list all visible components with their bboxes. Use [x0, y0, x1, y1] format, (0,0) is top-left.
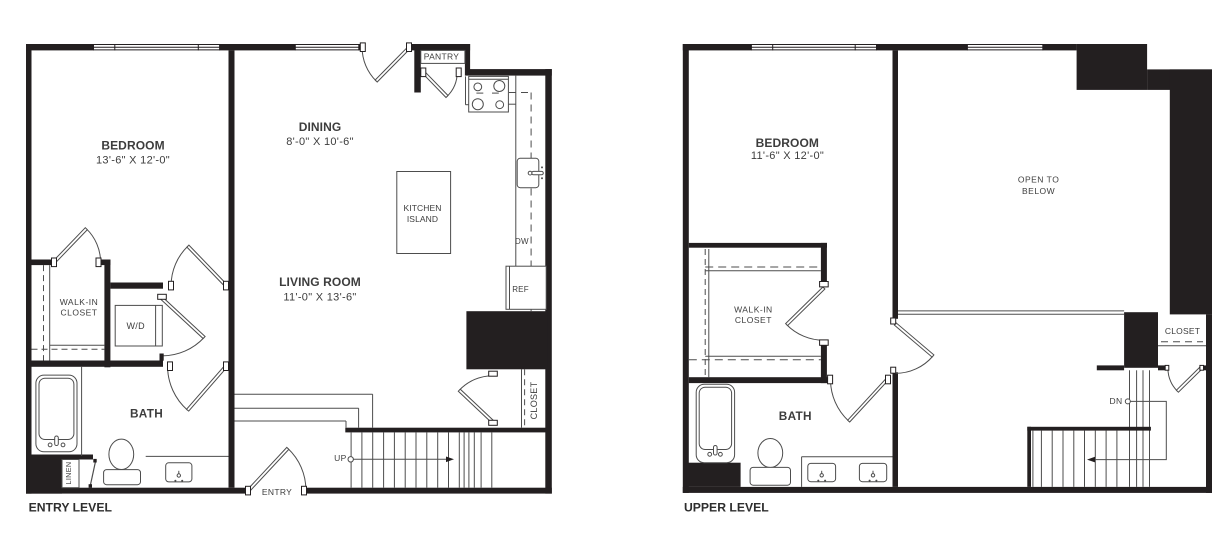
svg-text:11'-0" X 13'-6": 11'-0" X 13'-6" [283, 291, 356, 303]
svg-text:CLOSET: CLOSET [60, 308, 97, 318]
svg-text:ISLAND: ISLAND [407, 214, 438, 224]
svg-text:ENTRY: ENTRY [262, 487, 292, 497]
svg-text:OPEN TO: OPEN TO [1018, 174, 1059, 184]
svg-text:W/D: W/D [126, 321, 145, 331]
svg-text:DW: DW [515, 237, 529, 246]
svg-text:BATH: BATH [130, 407, 163, 421]
svg-text:KITCHEN: KITCHEN [403, 203, 441, 213]
svg-text:ENTRY LEVEL: ENTRY LEVEL [29, 501, 113, 515]
svg-text:REF: REF [512, 285, 529, 294]
svg-text:BATH: BATH [779, 409, 812, 423]
svg-text:BELOW: BELOW [1022, 186, 1055, 196]
svg-text:LINEN: LINEN [64, 462, 73, 485]
svg-text:WALK-IN: WALK-IN [734, 304, 773, 314]
svg-text:UP: UP [334, 453, 346, 463]
svg-text:BEDROOM: BEDROOM [101, 139, 164, 153]
svg-text:LIVING ROOM: LIVING ROOM [279, 275, 361, 289]
svg-text:8'-0" X 10'-6": 8'-0" X 10'-6" [286, 136, 354, 148]
svg-text:13'-6" X 12'-0": 13'-6" X 12'-0" [96, 154, 170, 166]
svg-text:WALK-IN: WALK-IN [60, 297, 99, 307]
svg-text:DINING: DINING [299, 120, 342, 134]
svg-text:BEDROOM: BEDROOM [756, 136, 819, 150]
svg-text:CLOSET: CLOSET [735, 315, 772, 325]
svg-text:PANTRY: PANTRY [424, 52, 460, 62]
svg-text:CLOSET: CLOSET [1165, 326, 1200, 336]
svg-text:11'-6" X 12'-0": 11'-6" X 12'-0" [751, 150, 824, 162]
svg-text:CLOSET: CLOSET [529, 381, 539, 419]
svg-text:UPPER LEVEL: UPPER LEVEL [684, 501, 769, 515]
svg-text:DN: DN [1110, 396, 1123, 406]
